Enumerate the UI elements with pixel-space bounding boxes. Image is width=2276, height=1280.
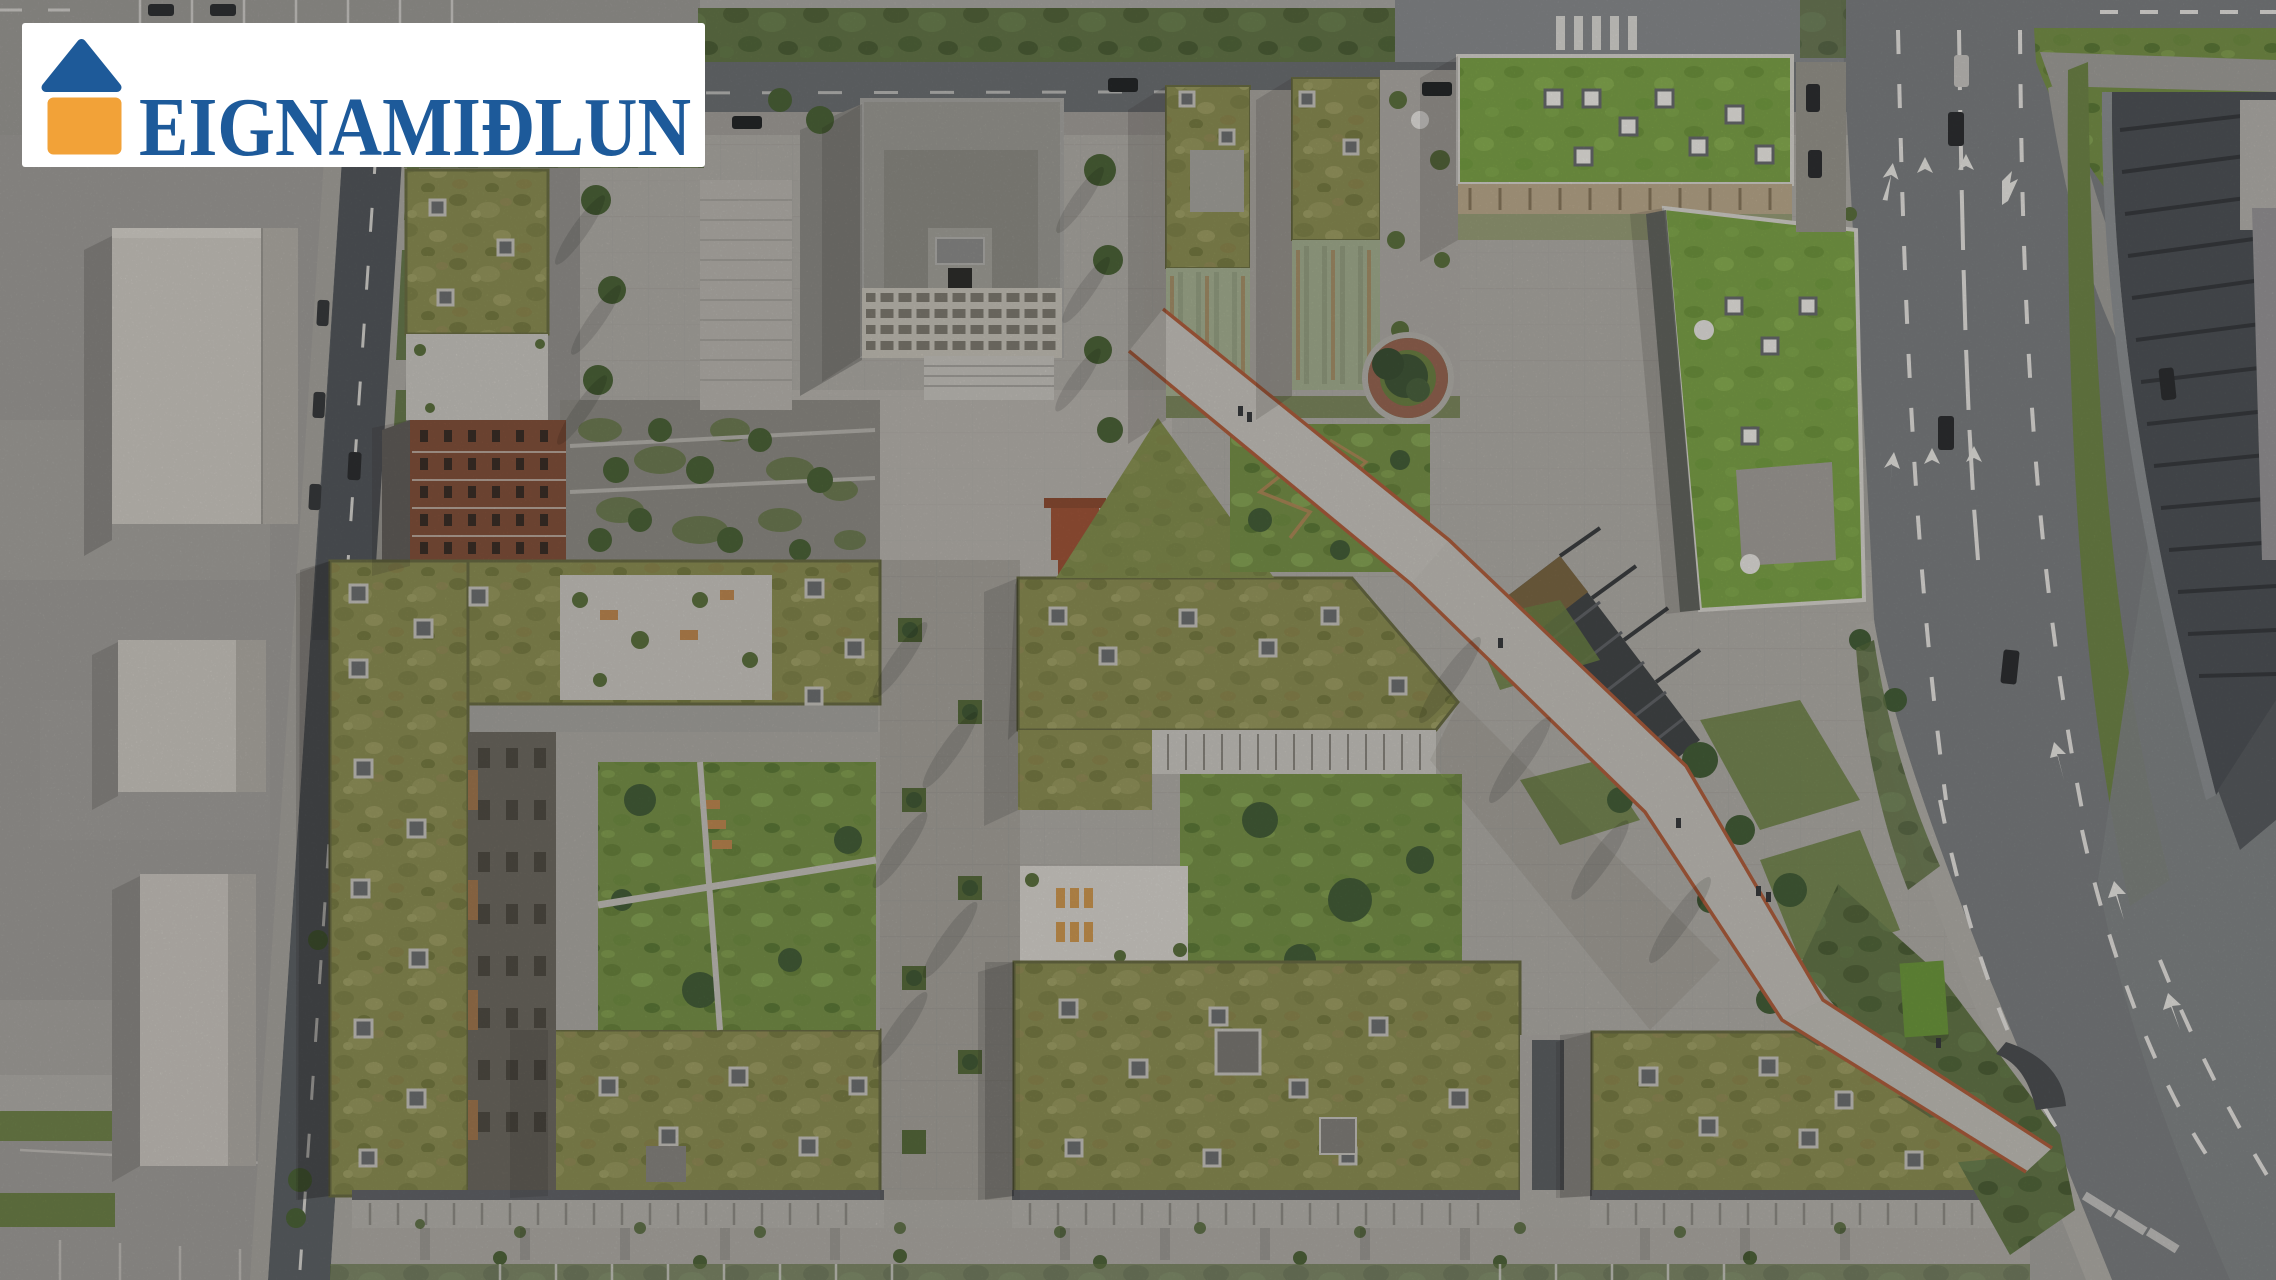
svg-text:EIGNAMIÐLUN: EIGNAMIÐLUN bbox=[139, 81, 691, 174]
